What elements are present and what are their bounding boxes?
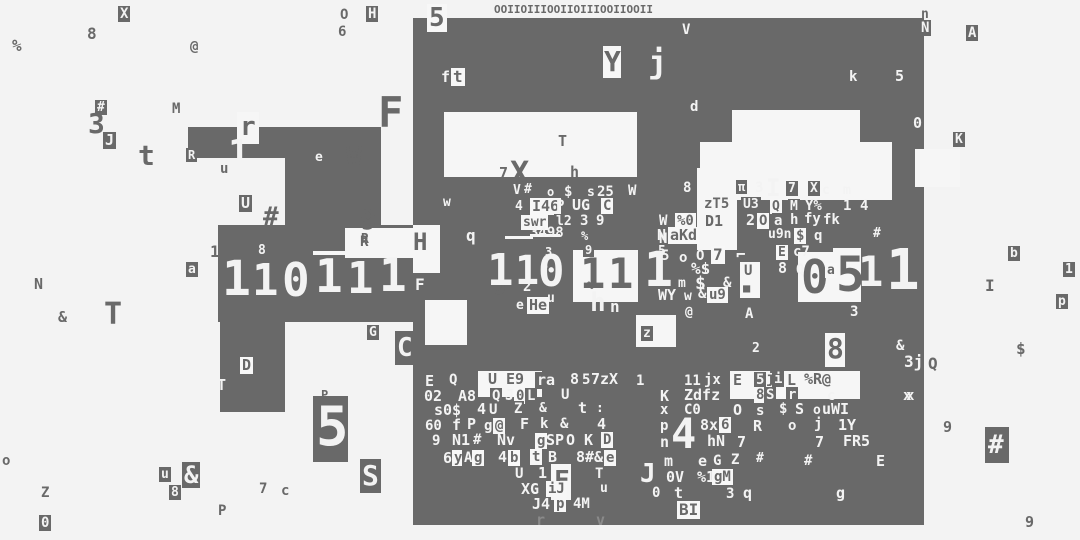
glyph: π: [736, 180, 747, 194]
glyph: 3j: [904, 354, 923, 370]
glyph: 7zX: [591, 372, 618, 387]
glyph: 1: [487, 249, 514, 293]
glyph: x: [660, 403, 668, 417]
glyph: 5: [661, 249, 669, 263]
glyph: o: [788, 419, 796, 433]
glyph: M: [172, 102, 180, 116]
glyph: #: [804, 454, 812, 468]
glyph: m: [843, 184, 851, 197]
glyph: U: [744, 264, 752, 278]
glyph: Q: [928, 356, 938, 372]
glyph: s: [756, 404, 764, 418]
glyph: gM: [712, 469, 733, 485]
glitch-canvas: %8X@O6H5OOIIOIIIOOIIOIIIOOIIOOIInNAM#3Jt…: [0, 0, 1080, 540]
glyph: &: [560, 417, 568, 431]
glyph: 8x: [700, 418, 718, 433]
glyph: c: [281, 484, 289, 498]
glyph: 7: [737, 435, 746, 450]
glyph: F: [415, 277, 425, 293]
glyph: 1: [315, 253, 343, 299]
glyph: J: [640, 461, 656, 487]
glyph: H: [413, 230, 427, 254]
glyph: u9: [707, 287, 728, 303]
glyph: t: [674, 486, 683, 501]
glyph: U3: [741, 197, 761, 212]
glyph: i: [772, 371, 784, 387]
glyph: K: [953, 132, 965, 147]
glyph: $: [794, 228, 806, 244]
glyph: 9: [596, 214, 604, 228]
glyph: 4: [671, 413, 696, 455]
glyph: BI: [677, 501, 700, 519]
glyph: D: [601, 432, 613, 448]
glyph: 8: [87, 26, 97, 42]
glyph: #: [988, 432, 1004, 458]
glyph: n: [610, 299, 620, 315]
glyph: U: [559, 387, 571, 403]
glyph: Zdfz: [684, 388, 720, 403]
glyph: G: [711, 453, 723, 469]
glyph: O: [733, 403, 742, 418]
glyph: 5: [754, 372, 766, 388]
glyph: %R@: [804, 372, 831, 387]
glyph: 1: [843, 199, 851, 213]
glyph: T: [593, 466, 605, 482]
glyph: 3498: [530, 226, 564, 240]
glyph: C: [601, 198, 613, 214]
glyph: e: [698, 454, 707, 469]
glyph: J4: [532, 497, 550, 512]
glyph: &: [58, 310, 67, 325]
glyph: V: [682, 23, 690, 37]
glyph: t: [138, 142, 155, 170]
glyph: SP: [546, 433, 564, 448]
glyph: S: [795, 402, 804, 417]
glyph: 4M: [571, 496, 592, 512]
glyph: 8: [683, 181, 691, 195]
glyph: fk: [821, 212, 842, 228]
glyph: 6: [338, 25, 346, 39]
glyph: L: [787, 373, 796, 388]
glyph: I: [985, 278, 995, 294]
glyph: WY: [658, 288, 676, 303]
glyph: D: [240, 357, 253, 374]
glyph: uWI: [822, 402, 849, 417]
glyph: 7: [259, 482, 267, 496]
glyph: I: [766, 176, 780, 200]
glyph: q: [743, 486, 752, 501]
glyph: Z: [41, 486, 49, 500]
glyph: ■: [743, 282, 750, 294]
glyph: &: [896, 339, 904, 353]
glyph: z: [641, 326, 653, 341]
glyph: W: [628, 184, 636, 198]
glyph: $: [777, 401, 789, 417]
glyph: g: [836, 486, 845, 501]
glyph: &: [537, 401, 549, 416]
glyph: 6: [443, 451, 452, 466]
glyph: r: [536, 513, 545, 528]
glyph: G: [367, 325, 379, 340]
glyph: :: [594, 401, 606, 416]
glyph: 0: [39, 515, 51, 531]
glyph: R: [186, 148, 197, 162]
glyph: N1: [452, 433, 470, 448]
glyph: 7: [815, 435, 824, 450]
glyph: o: [2, 454, 10, 468]
glyph: B: [548, 450, 557, 465]
glyph: 9: [430, 433, 442, 449]
glyph: 1: [379, 252, 407, 298]
glyph: t: [451, 68, 465, 86]
glyph: 3: [580, 214, 588, 228]
glyph: 1: [538, 466, 547, 481]
glyph: N: [34, 277, 43, 292]
glyph: c: [822, 184, 830, 197]
glyph: 1: [347, 257, 374, 301]
glyph: E: [876, 454, 885, 469]
glyph: J: [103, 132, 116, 149]
glyph: Nv: [497, 433, 515, 448]
glyph: O: [566, 433, 575, 448]
glyph: 1: [1063, 262, 1075, 277]
glyph: 2: [752, 342, 760, 355]
glyph: 2: [523, 280, 531, 294]
glyph: V: [513, 184, 521, 197]
glyph: 0: [913, 116, 922, 131]
white-cutout: [732, 110, 860, 143]
glyph: g: [472, 450, 484, 466]
glyph: 4: [477, 402, 486, 417]
glyph: Q: [447, 372, 459, 388]
glyph: p: [658, 418, 670, 434]
glyph: 8#&: [576, 450, 603, 465]
glyph: U: [488, 372, 497, 387]
glyph: 7: [499, 166, 508, 181]
glyph: T: [104, 300, 122, 330]
glyph: k: [849, 70, 857, 84]
glyph: t: [578, 401, 587, 416]
glyph: U: [239, 195, 252, 212]
glyph: 0: [282, 257, 310, 303]
glyph: P: [467, 417, 476, 432]
glyph: 1: [228, 136, 250, 172]
glyph: 5: [427, 4, 447, 32]
glyph: C: [397, 335, 413, 361]
glyph: 1: [886, 243, 920, 299]
glyph: U: [487, 402, 499, 418]
glyph: 1: [252, 259, 279, 303]
glyph: m: [664, 454, 673, 469]
glyph: $: [1016, 341, 1026, 357]
glyph: w: [684, 290, 692, 303]
glyph: X: [808, 181, 820, 196]
glyph: j: [812, 416, 824, 432]
glyph: zT5: [704, 197, 729, 211]
white-line: [505, 236, 533, 239]
glyph: q: [466, 228, 476, 244]
glyph: b: [508, 450, 520, 466]
glyph: u9n: [768, 228, 791, 241]
glyph: q: [814, 229, 822, 243]
glyph: a: [186, 262, 198, 277]
glyph: Y: [604, 48, 621, 76]
glyph: #: [524, 183, 532, 196]
glyph: n: [660, 435, 669, 450]
glyph: O: [340, 8, 348, 22]
white-cutout: [915, 149, 960, 187]
glyph: 6: [719, 417, 731, 433]
glyph: N: [657, 228, 666, 243]
glyph: @: [683, 305, 695, 320]
glyph: x: [906, 389, 914, 403]
glyph: 1Y: [838, 418, 856, 433]
glyph: 8: [169, 485, 181, 500]
glyph: 2: [746, 213, 755, 228]
glyph: hN: [707, 434, 725, 449]
glyph: 3: [850, 305, 858, 319]
glyph: p: [554, 496, 566, 512]
glyph: $: [541, 259, 548, 271]
glyph: FR5: [843, 434, 870, 449]
glyph: OOIIOIIIOOIIOIIIOOIIOOII: [494, 4, 653, 15]
glyph: S: [764, 387, 776, 403]
white-cutout: [444, 112, 637, 177]
glyph: 3: [726, 487, 734, 501]
glyph: F: [378, 92, 403, 134]
glyph: w: [443, 196, 451, 209]
glyph: d: [690, 100, 698, 114]
glyph: T: [217, 378, 226, 393]
glyph: T: [558, 134, 567, 149]
glyph: H: [366, 6, 378, 22]
glyph: b: [1008, 246, 1020, 261]
glyph: @: [190, 40, 198, 54]
glyph: h: [790, 213, 798, 227]
glyph: 4: [597, 417, 606, 432]
glyph: 8: [827, 335, 844, 363]
glyph: 5: [316, 400, 349, 454]
glyph: P: [218, 504, 226, 518]
glyph: 5: [895, 69, 904, 84]
glyph: #: [471, 432, 483, 448]
glyph: h: [590, 290, 606, 316]
glyph: UG: [572, 198, 590, 213]
glyph: e: [604, 450, 616, 466]
glyph: Z: [729, 452, 741, 468]
glyph: j: [648, 46, 667, 78]
glyph: #: [263, 204, 279, 230]
glyph: 4: [860, 199, 868, 213]
glyph: X: [118, 6, 130, 22]
glyph: 1: [636, 374, 644, 388]
glyph: K: [584, 433, 593, 448]
glyph: 9: [360, 206, 377, 234]
glyph: f: [441, 70, 450, 85]
glyph: E: [776, 245, 788, 260]
glyph: %: [12, 38, 22, 54]
glyph: fy: [804, 212, 821, 226]
glyph: 3: [755, 181, 763, 195]
glyph: k: [538, 416, 550, 432]
glyph: #: [754, 451, 766, 466]
glyph: e: [315, 151, 323, 164]
glyph: 3: [545, 246, 552, 258]
glyph: 7: [711, 246, 725, 264]
glyph: 1: [210, 244, 220, 260]
glyph: D1: [705, 214, 723, 229]
glyph: F: [520, 417, 529, 432]
glyph: He: [527, 297, 549, 314]
glyph: u: [598, 481, 610, 496]
glyph: 0: [650, 485, 662, 501]
glyph: e: [514, 298, 526, 313]
glyph: Q: [770, 199, 782, 214]
glyph: u: [220, 162, 228, 176]
glyph: h: [570, 165, 579, 180]
glyph: P: [556, 199, 564, 213]
glyph: o: [679, 251, 687, 265]
glyph: 9: [1025, 515, 1034, 530]
glyph: W: [346, 144, 362, 170]
glyph: 1: [222, 255, 251, 303]
glyph: p: [1056, 294, 1068, 309]
glyph: u: [159, 467, 171, 482]
glyph: ra: [535, 372, 557, 389]
glyph: #: [871, 226, 883, 241]
glyph: &: [698, 287, 706, 301]
glyph: N: [919, 20, 931, 36]
glyph: 4: [498, 450, 507, 465]
glyph: S: [362, 462, 379, 490]
glyph: 1: [608, 253, 633, 295]
glyph: &: [182, 462, 200, 488]
glyph: 8: [776, 260, 789, 277]
glyph: E9: [506, 372, 524, 387]
glyph: v: [596, 513, 605, 528]
glyph: 9: [943, 420, 952, 435]
glyph: t: [530, 449, 542, 465]
glyph: E: [733, 373, 742, 388]
glyph: R: [753, 419, 762, 434]
glyph: R: [360, 235, 368, 249]
glyph: A: [966, 25, 978, 41]
glyph: 1: [858, 251, 883, 293]
glyph: 4: [513, 199, 525, 214]
glyph: 8: [570, 372, 579, 387]
glyph: 7: [786, 181, 798, 196]
glyph: ⌐: [736, 247, 746, 263]
glyph: %: [579, 229, 590, 243]
glyph: L: [525, 388, 537, 404]
glyph: A: [745, 307, 753, 321]
glyph: 60: [423, 418, 444, 434]
glyph: 0V: [666, 470, 684, 485]
white-cutout: [425, 300, 467, 345]
